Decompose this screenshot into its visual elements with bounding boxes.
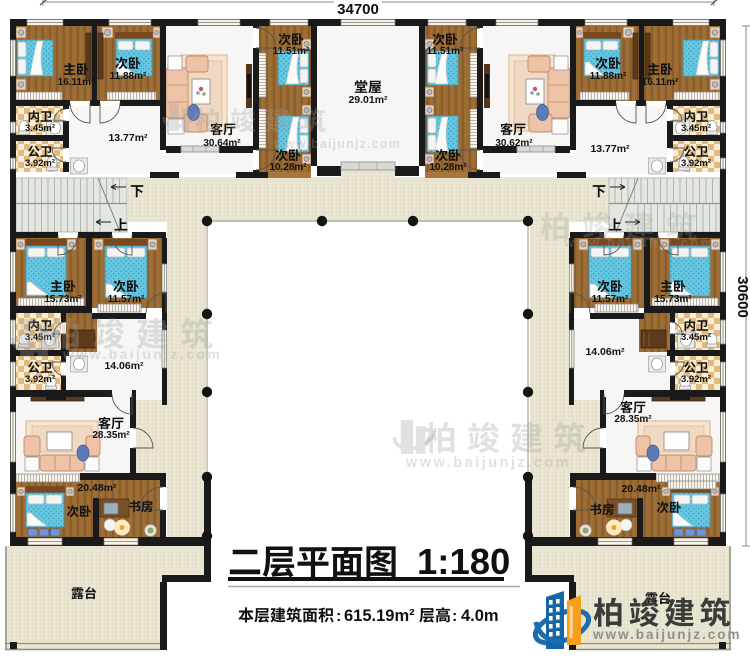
- svg-text:3.45m²: 3.45m²: [25, 123, 55, 134]
- svg-text:4.0m: 4.0m: [461, 607, 499, 625]
- svg-text:30600: 30600: [734, 276, 750, 318]
- svg-text:16.11m²: 16.11m²: [642, 77, 679, 88]
- svg-text:11.51m²: 11.51m²: [427, 46, 464, 57]
- svg-text:20.48m²: 20.48m²: [621, 483, 661, 495]
- svg-text:30.64m²: 30.64m²: [203, 138, 241, 149]
- svg-text:34700: 34700: [337, 1, 379, 18]
- svg-text:30.62m²: 30.62m²: [495, 138, 533, 149]
- svg-text:15.73m²: 15.73m²: [654, 294, 692, 305]
- svg-text:13.77m²: 13.77m²: [590, 143, 630, 155]
- svg-text:3.92m²: 3.92m²: [25, 158, 55, 169]
- svg-text:29.01m²: 29.01m²: [348, 94, 388, 106]
- svg-text:www.baijunjz.com: www.baijunjz.com: [563, 235, 715, 250]
- svg-text:615.19m²: 615.19m²: [344, 607, 415, 625]
- svg-text:11.57m²: 11.57m²: [592, 294, 629, 305]
- svg-text:3.92m²: 3.92m²: [25, 374, 55, 385]
- svg-text:www.baijunjz.com: www.baijunjz.com: [592, 627, 742, 642]
- svg-text:11.88m²: 11.88m²: [110, 71, 147, 82]
- svg-text:15.73m²: 15.73m²: [44, 294, 82, 305]
- svg-text:11.57m²: 11.57m²: [108, 294, 145, 305]
- svg-text::: :: [452, 608, 457, 625]
- svg-text:11.51m²: 11.51m²: [273, 46, 310, 57]
- svg-text::: :: [336, 608, 341, 625]
- svg-text:10.28m²: 10.28m²: [429, 162, 467, 173]
- svg-text:11.88m²: 11.88m²: [590, 71, 627, 82]
- svg-text:www.baijunjz.com: www.baijunjz.com: [62, 346, 222, 362]
- svg-text:20.48m²: 20.48m²: [77, 482, 117, 494]
- svg-text:14.06m²: 14.06m²: [585, 346, 625, 358]
- svg-text:13.77m²: 13.77m²: [108, 132, 148, 144]
- svg-text:3.45m²: 3.45m²: [681, 332, 711, 343]
- svg-text:28.35m²: 28.35m²: [92, 430, 130, 441]
- svg-text:10.28m²: 10.28m²: [269, 162, 307, 173]
- svg-text:3.45m²: 3.45m²: [681, 123, 711, 134]
- svg-text:3.92m²: 3.92m²: [681, 158, 711, 169]
- svg-text:1:180: 1:180: [417, 541, 510, 582]
- svg-text:16.11m²: 16.11m²: [58, 77, 95, 88]
- svg-text:www.baijunjz.com: www.baijunjz.com: [405, 455, 571, 471]
- svg-text:3.92m²: 3.92m²: [681, 374, 711, 385]
- svg-text:www.baijunjz.com: www.baijunjz.com: [273, 137, 401, 151]
- svg-text:28.35m²: 28.35m²: [614, 414, 652, 425]
